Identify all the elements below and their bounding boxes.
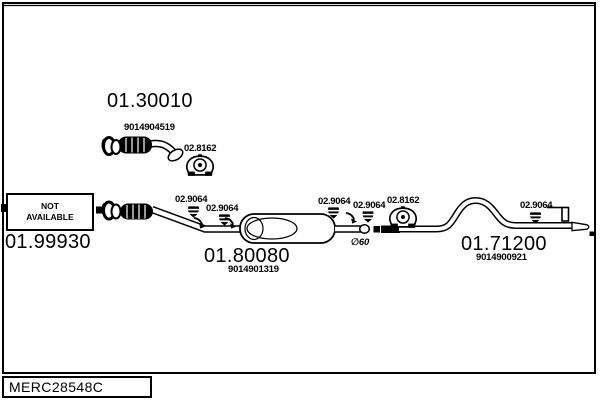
oe-number-rear-pipe: 9014900921 (476, 252, 527, 263)
fitting-label-hanger-2: 02.9064 (206, 203, 238, 214)
connector-square (590, 232, 595, 237)
front-pipe-drawing (102, 137, 185, 164)
rubber-mount-icon (187, 154, 213, 176)
part-number-front-pipe: 01.30010 (107, 90, 193, 113)
hanger-icon (362, 211, 375, 222)
connector-square (96, 207, 103, 214)
rubber-mount-icon (390, 206, 416, 228)
not-available-line1: NOT (41, 201, 59, 212)
connector-square (374, 226, 381, 233)
footer-code-box: MERC28548C (2, 376, 152, 398)
hanger-icon (529, 212, 542, 223)
fitting-label-clamp-right: 02.8162 (387, 195, 419, 206)
not-available-line2: AVAILABLE (26, 212, 73, 223)
muffler-drawing (240, 214, 369, 243)
pipe-diameter-annotation: ∅60 (351, 237, 369, 248)
fitting-label-hanger-5: 02.9064 (520, 200, 552, 211)
fitting-label-hanger-4: 02.9064 (353, 200, 385, 211)
fitting-label-clamp-top: 02.8162 (184, 143, 216, 154)
not-available-box: NOT AVAILABLE (6, 193, 94, 231)
fitting-label-hanger-3: 02.9064 (318, 196, 350, 207)
exhaust-diagram-sheet: 01.30010 9014904519 02.8162 NOT AVAILABL… (0, 0, 600, 400)
fitting-label-hanger-1: 02.9064 (175, 194, 207, 205)
hanger-icon (187, 206, 200, 217)
oe-number-front-pipe: 9014904519 (124, 122, 175, 133)
attachment-arrow-icon (346, 213, 357, 224)
footer-code: MERC28548C (9, 379, 103, 395)
oe-number-center-muffler: 9014901319 (228, 264, 279, 275)
part-number-flex-pipe: 01.99930 (5, 231, 91, 254)
